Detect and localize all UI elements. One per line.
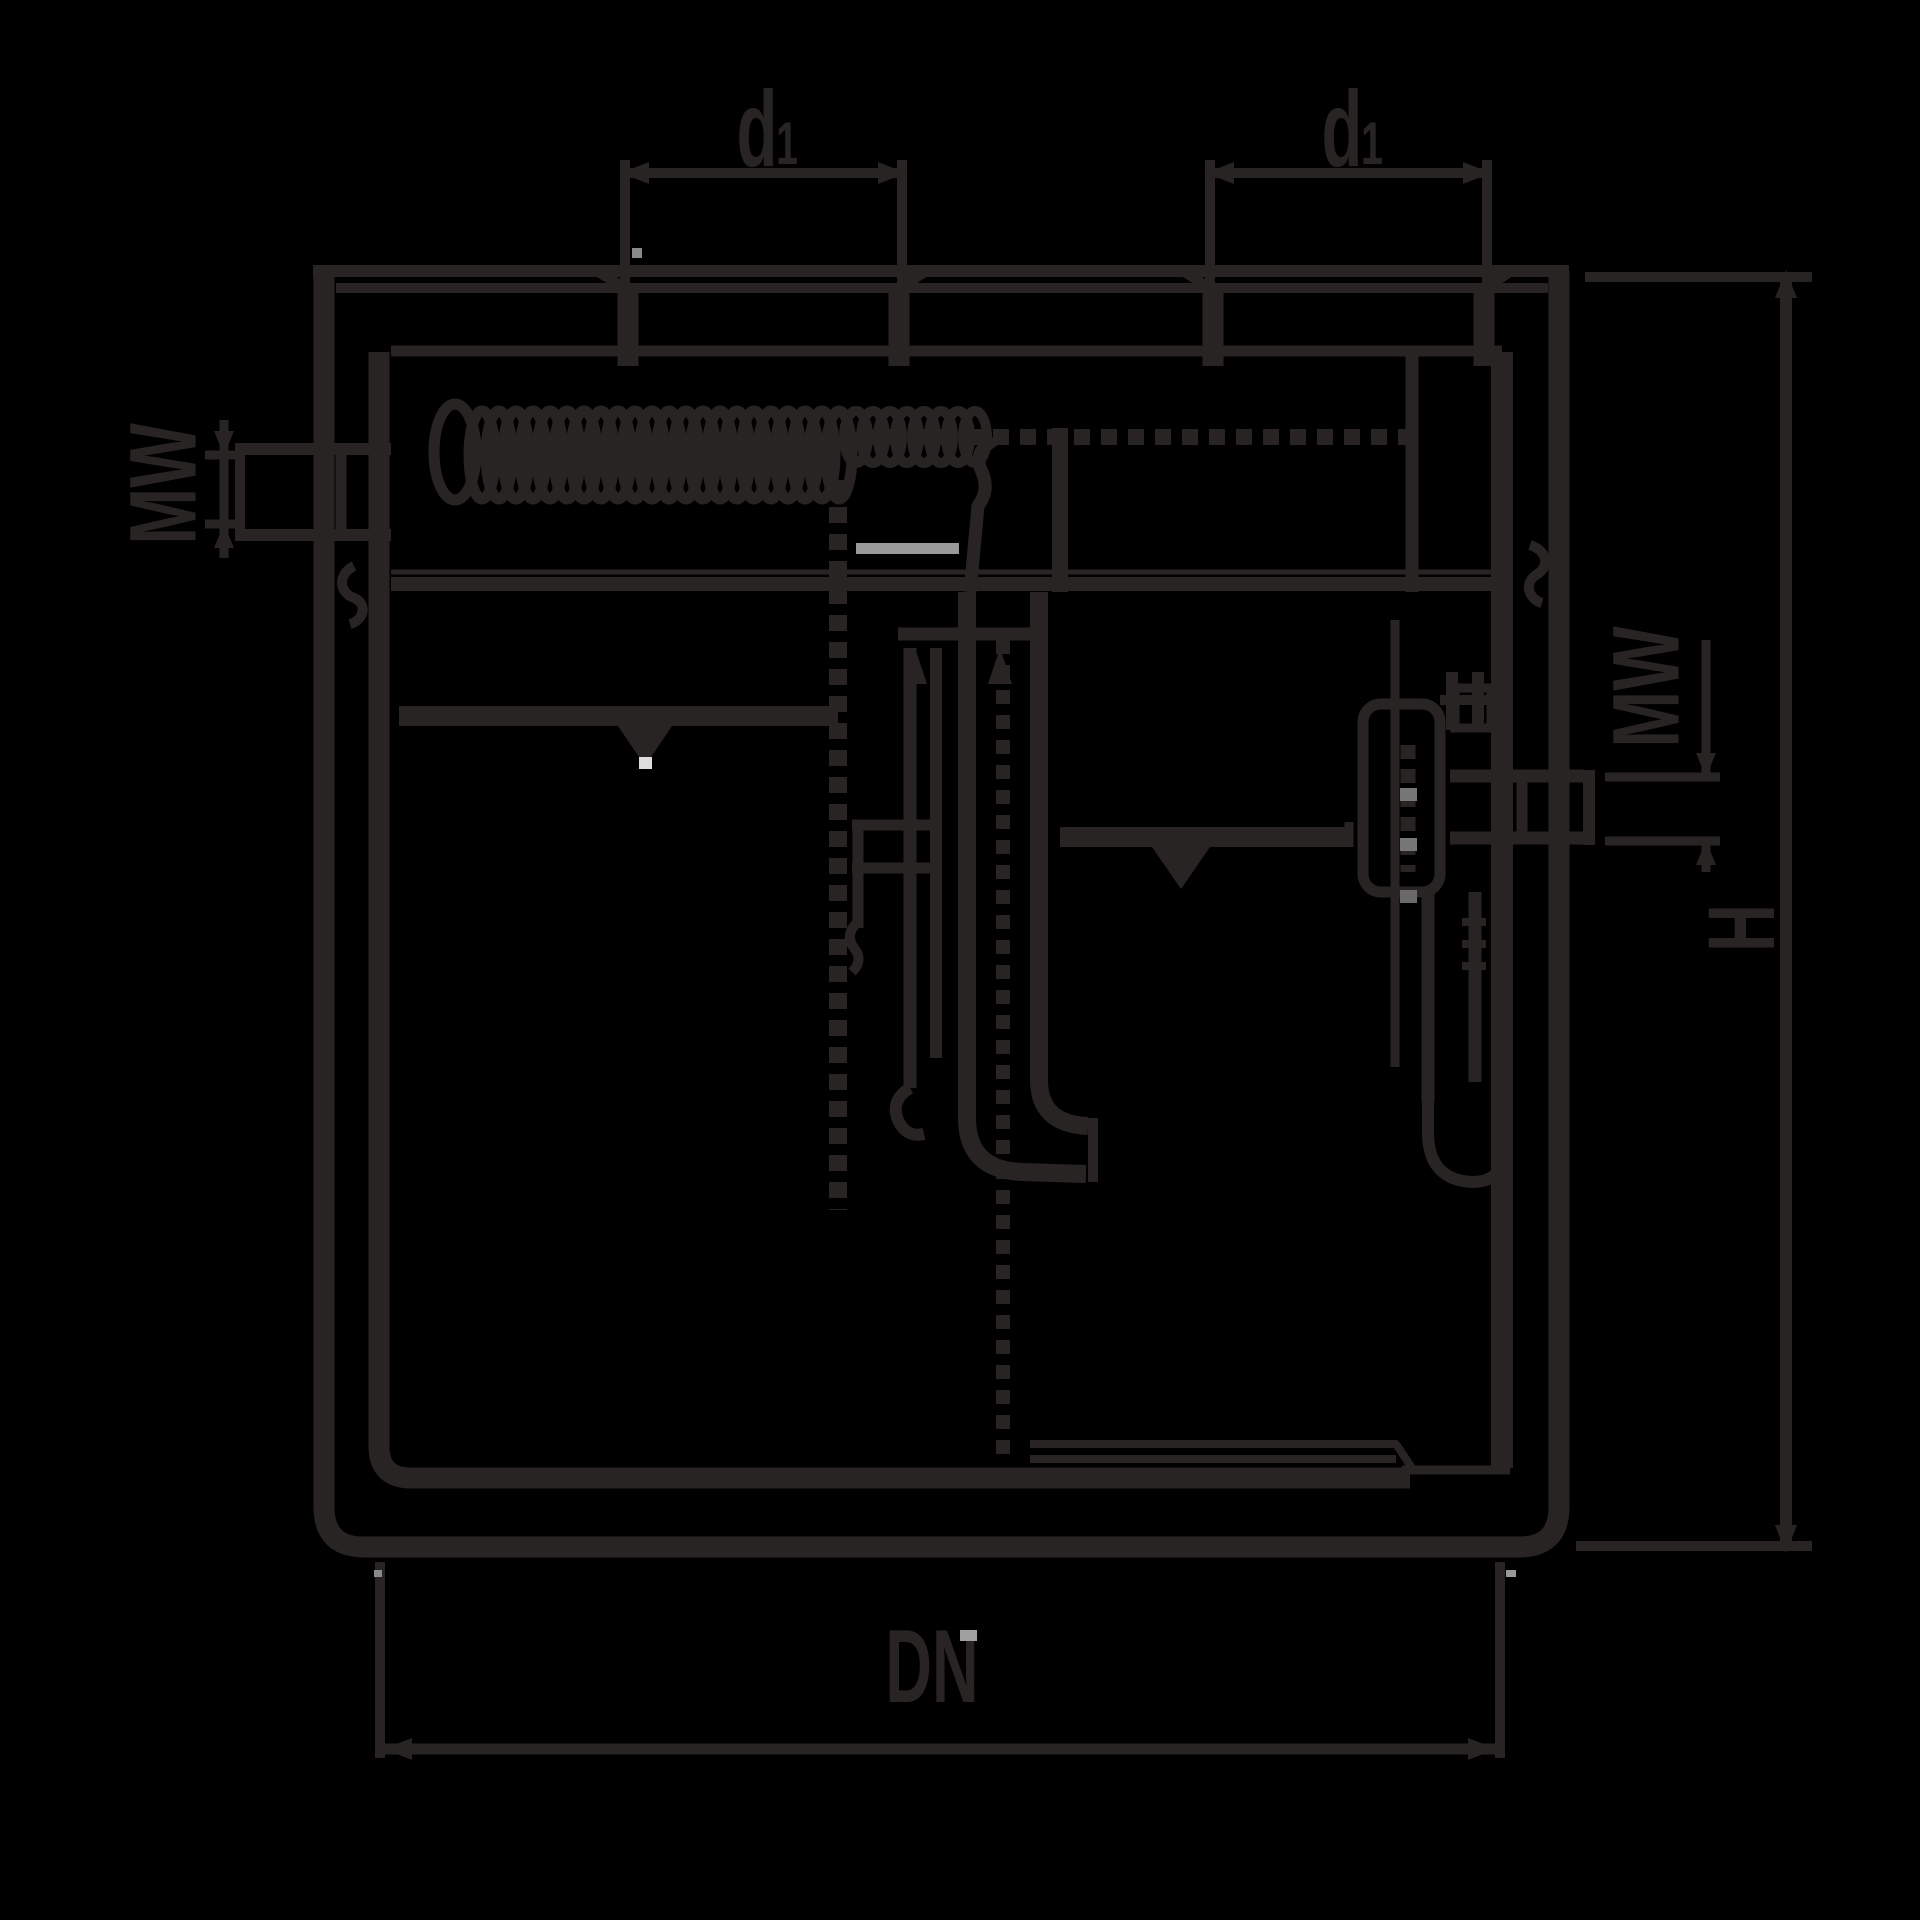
svg-text:1: 1: [776, 110, 798, 177]
svg-text:1: 1: [1361, 110, 1383, 177]
svg-text:d: d: [1322, 70, 1363, 190]
svg-text:MW: MW: [1593, 626, 1700, 748]
svg-text:d: d: [737, 70, 778, 190]
svg-text:MW: MW: [110, 423, 217, 545]
svg-text:DN: DN: [885, 1609, 978, 1724]
svg-text:H: H: [1689, 904, 1794, 952]
